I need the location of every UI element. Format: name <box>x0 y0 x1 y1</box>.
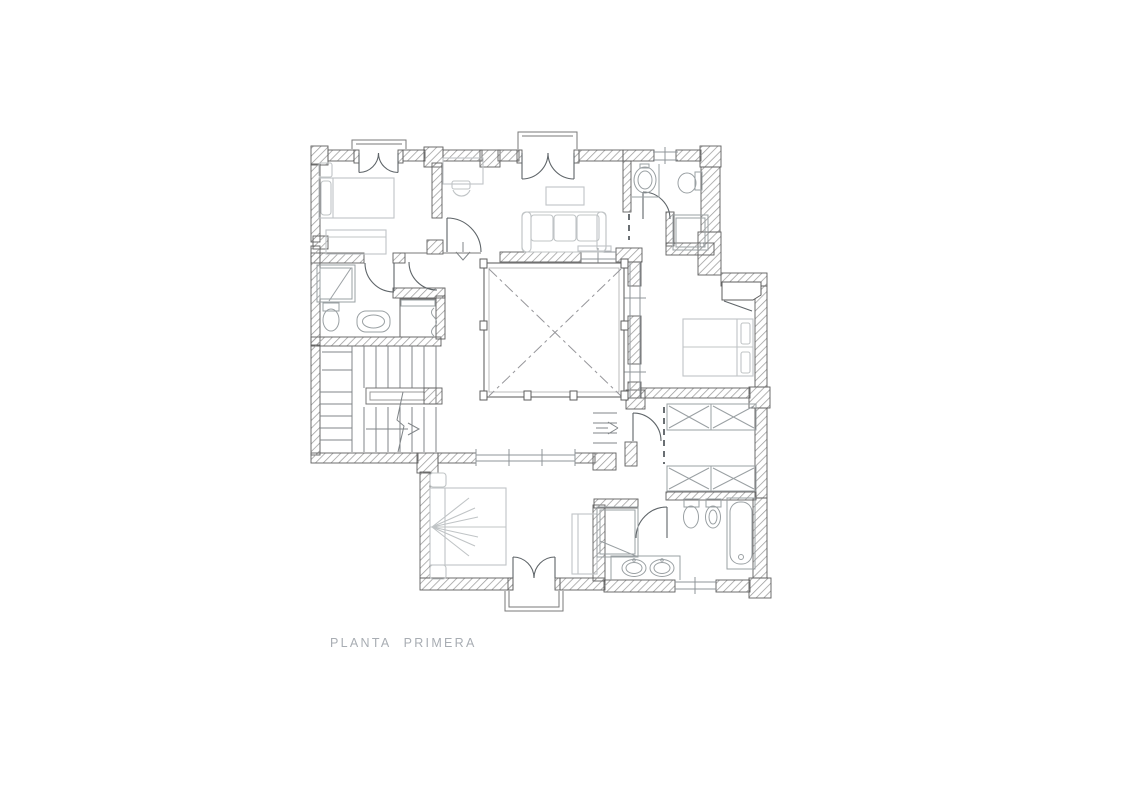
door-jamb <box>574 150 579 163</box>
wall-segment <box>500 252 581 262</box>
wall-segment <box>623 150 654 161</box>
bay-door-niche <box>722 282 761 300</box>
wardrobes-dressing <box>667 404 756 491</box>
wall-segment <box>403 150 425 161</box>
window-bath-bottom <box>675 577 716 594</box>
corner-block <box>311 146 328 165</box>
door-bay-right-bedroom <box>724 301 752 311</box>
wall-segment <box>755 408 767 498</box>
wall-segment <box>575 453 595 463</box>
nightstand-icon <box>430 565 446 579</box>
door-jamb <box>517 150 522 163</box>
plan-title: PLANTA PRIMERA <box>330 636 477 650</box>
shaft-interior <box>400 299 436 337</box>
door-gallery-hall <box>633 413 661 441</box>
window-gallery <box>476 449 575 466</box>
entrance-door <box>513 557 555 578</box>
toilet-icon <box>678 173 696 193</box>
courtyard-void <box>480 259 628 400</box>
corner-block <box>700 146 721 167</box>
wall-pier <box>427 240 443 254</box>
entrance-porch-inner <box>509 591 559 607</box>
stair-direction-arrow-icon <box>366 423 419 435</box>
wall-segment <box>436 296 445 339</box>
desk-icon <box>443 158 483 184</box>
bathroom-left-fixtures <box>317 265 390 332</box>
wall-segment <box>311 345 320 455</box>
coffee-table-icon <box>546 187 584 205</box>
wall-segment <box>420 578 513 590</box>
wall-segment <box>328 150 354 161</box>
pillow-icon <box>741 323 750 344</box>
pillow-icon <box>321 181 331 215</box>
wall-segment <box>311 246 320 346</box>
wall-segment <box>593 505 605 581</box>
stair-newel-pier <box>424 388 442 404</box>
bedroom-topleft-furniture <box>319 163 394 254</box>
balcony-top-center <box>518 132 577 149</box>
wall-segment <box>716 580 750 592</box>
courtyard-outline <box>484 263 624 397</box>
bedroom-right-furniture <box>683 319 753 376</box>
sink-icon <box>357 311 390 332</box>
wall-segment <box>623 161 631 212</box>
closet-shaft <box>400 299 437 337</box>
wall-segment <box>311 453 418 463</box>
wall-segment <box>420 472 430 578</box>
bathroom-bottom-fixtures <box>597 498 755 580</box>
door-bottom-bathroom <box>636 507 667 538</box>
door-jamb <box>555 578 560 590</box>
entry-arrow-icon <box>456 242 470 260</box>
entrance-porch <box>505 591 563 611</box>
door-jamb <box>508 578 513 590</box>
drain-icon <box>739 555 744 560</box>
balcony-door-topleft <box>359 153 398 173</box>
bed-icon <box>319 178 394 218</box>
chair-icon <box>452 181 470 189</box>
door-left-bathroom <box>365 263 394 292</box>
wall-segment <box>579 150 623 161</box>
door-jamb <box>398 150 403 163</box>
window-top-right <box>653 147 678 164</box>
wall-segment <box>755 286 767 387</box>
gallery-steps <box>593 413 618 443</box>
living-room-furniture <box>443 158 611 252</box>
wall-pier <box>593 453 616 470</box>
wall-segment <box>443 150 482 161</box>
wall-segment <box>676 150 701 161</box>
wall-segment <box>701 167 720 232</box>
balcony-door-topcenter <box>522 153 574 179</box>
pillow-icon <box>741 352 750 373</box>
toilet-icon <box>323 303 339 311</box>
bench-icon <box>326 230 386 254</box>
door-living-room <box>447 218 481 252</box>
wall-pier <box>417 453 438 473</box>
door-jamb <box>393 253 405 263</box>
wall-segment <box>432 163 442 218</box>
plan-sheet: PLANTA PRIMERA <box>0 0 1123 793</box>
door-jamb <box>354 150 359 163</box>
wall-segment <box>311 337 441 346</box>
corner-block <box>749 387 770 408</box>
wall-segment <box>498 150 519 161</box>
door-hall-lobby <box>409 262 437 290</box>
corner-block <box>749 578 771 598</box>
wall-pier <box>625 442 637 466</box>
wall-segment <box>438 453 476 463</box>
nightstand-icon <box>430 473 446 487</box>
wall-segment <box>604 580 675 592</box>
steps-arrow-icon <box>596 422 618 434</box>
wall-pier <box>616 248 642 262</box>
floor-plan-canvas <box>0 0 1123 793</box>
wall-segment <box>640 388 750 398</box>
